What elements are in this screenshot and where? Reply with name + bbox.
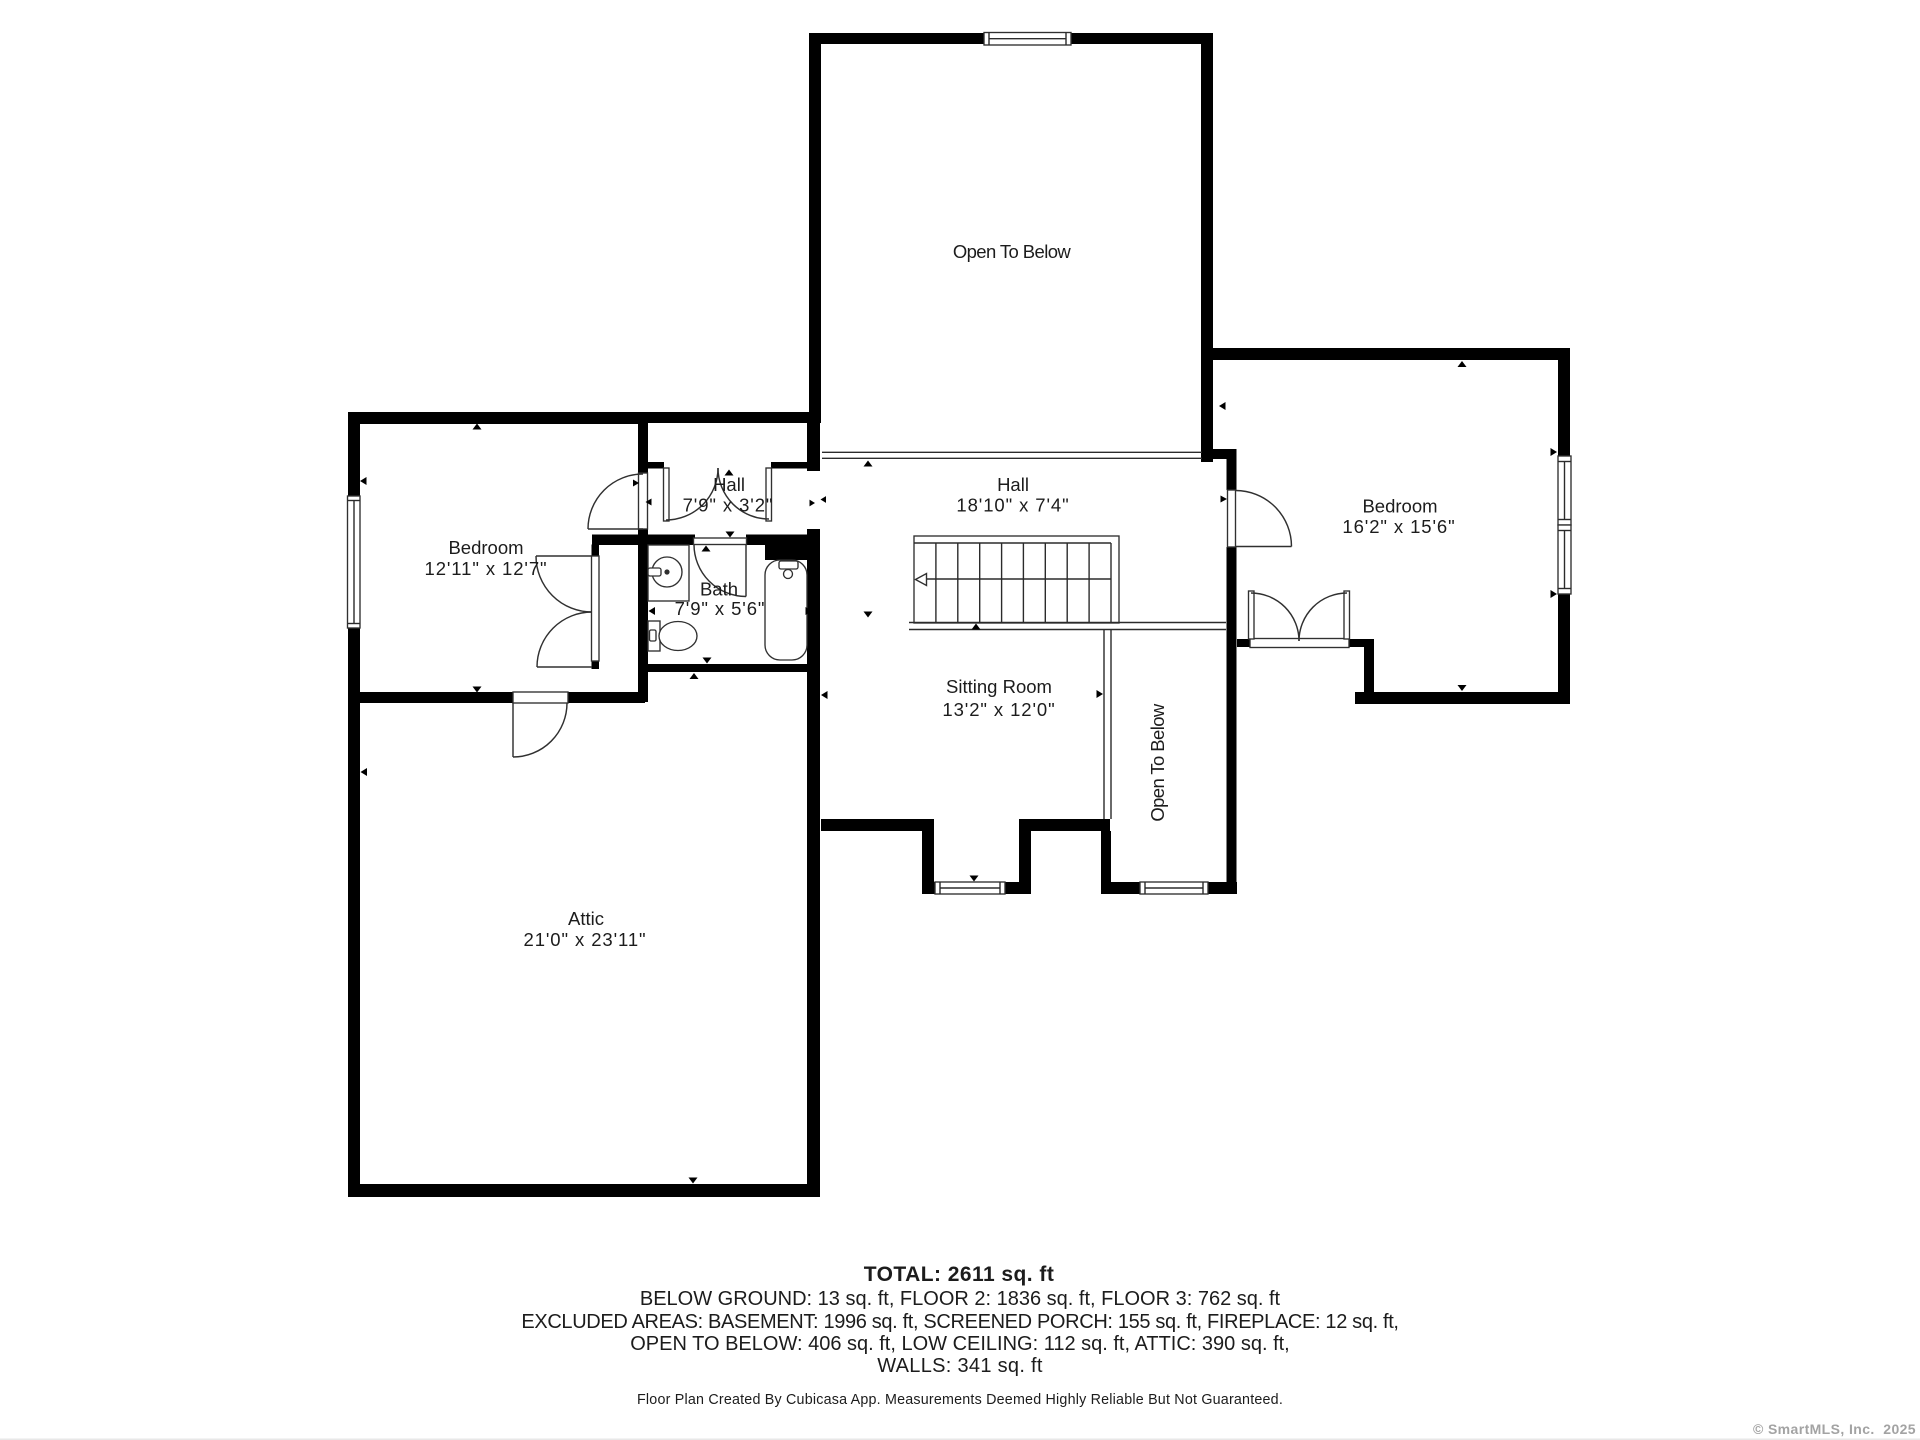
svg-text:Open To Below: Open To Below [953,241,1072,262]
svg-text:7'9" x 5'6": 7'9" x 5'6" [675,598,766,619]
svg-text:12'11" x 12'7": 12'11" x 12'7" [425,558,548,579]
svg-text:7'9" x 3'2": 7'9" x 3'2" [683,495,774,516]
svg-text:Attic: Attic [568,908,604,929]
svg-text:16'2" x 15'6": 16'2" x 15'6" [1342,516,1455,537]
svg-text:OPEN TO BELOW: 406 sq. ft, LOW: OPEN TO BELOW: 406 sq. ft, LOW CEILING: … [630,1333,1290,1355]
svg-text:WALLS: 341 sq. ft: WALLS: 341 sq. ft [877,1355,1043,1377]
svg-text:Bedroom: Bedroom [448,537,523,558]
svg-text:13'2" x 12'0": 13'2" x 12'0" [942,699,1055,720]
svg-text:Bath: Bath [700,579,738,600]
svg-text:Floor Plan Created By Cubicasa: Floor Plan Created By Cubicasa App. Meas… [637,1392,1283,1408]
svg-text:TOTAL: 2611 sq. ft: TOTAL: 2611 sq. ft [864,1263,1055,1286]
svg-text:EXCLUDED AREAS: BASEMENT: 1996: EXCLUDED AREAS: BASEMENT: 1996 sq. ft, S… [521,1311,1398,1333]
svg-text:Open To Below: Open To Below [1147,703,1168,822]
svg-text:18'10" x 7'4": 18'10" x 7'4" [956,495,1069,516]
svg-text:Hall: Hall [997,474,1029,495]
svg-text:Hall: Hall [713,474,745,495]
svg-text:21'0" x 23'11": 21'0" x 23'11" [524,929,647,950]
svg-text:© SmartMLS, Inc. 2025: © SmartMLS, Inc. 2025 [1753,1421,1916,1437]
svg-text:Bedroom: Bedroom [1362,496,1437,517]
svg-text:Sitting Room: Sitting Room [946,676,1052,697]
svg-text:BELOW GROUND: 13 sq. ft, FLOOR: BELOW GROUND: 13 sq. ft, FLOOR 2: 1836 s… [640,1288,1281,1310]
